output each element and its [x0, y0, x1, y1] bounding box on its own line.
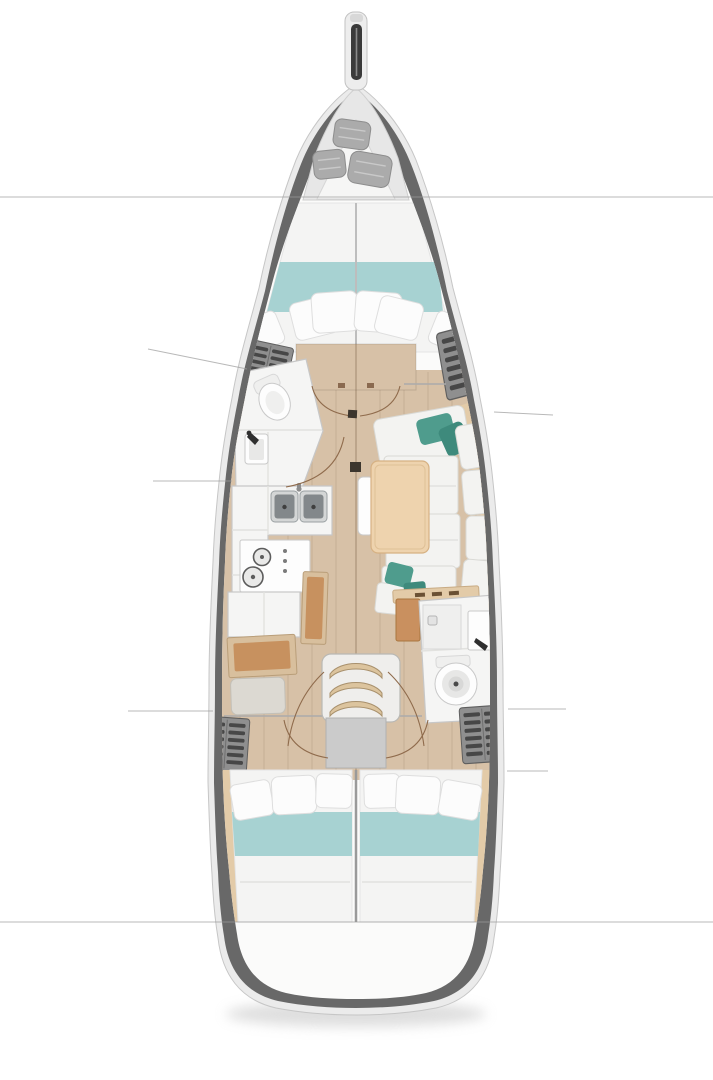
- door-stop: [348, 410, 357, 418]
- engine-box: [326, 718, 386, 768]
- floor-plan-canvas: [0, 0, 713, 1080]
- galley-stove: [240, 540, 310, 592]
- aft-shower: [423, 605, 461, 649]
- bowsprit: [345, 12, 367, 90]
- forward-foot-locker-panel: [296, 344, 416, 390]
- nav-bench: [230, 677, 285, 715]
- mast-step: [350, 462, 361, 472]
- salon-table: [371, 461, 429, 553]
- aft-chest: [396, 599, 420, 641]
- boat-floor-plan: [0, 0, 713, 1080]
- forward-sink: [245, 431, 268, 464]
